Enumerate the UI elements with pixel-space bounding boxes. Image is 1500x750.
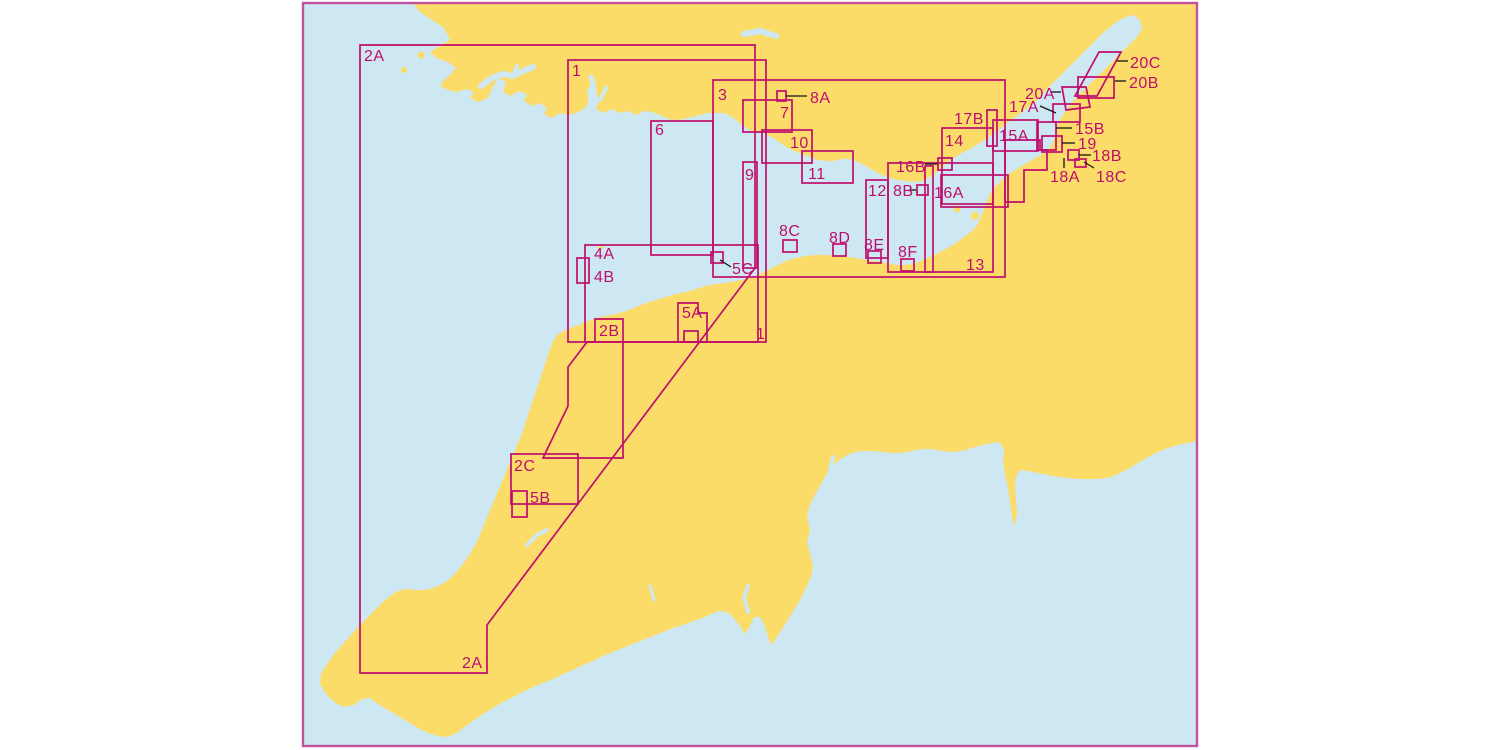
chart-label-2A-top: 2A — [364, 48, 385, 65]
chart-label-16A: 16A — [934, 185, 964, 202]
chart-label-7: 7 — [780, 105, 789, 122]
chart-label-2B: 2B — [599, 323, 620, 340]
chart-label-12: 12 — [868, 183, 887, 200]
chart-label-17B: 17B — [954, 111, 984, 128]
chart-label-20C: 20C — [1130, 55, 1161, 72]
island-grassholm — [401, 67, 407, 73]
chart-label-8D: 8D — [829, 230, 850, 247]
chart-label-8B: 8B — [893, 183, 914, 200]
island-steep-holm — [971, 212, 979, 220]
chart-label-8A: 8A — [810, 90, 831, 107]
chart-label-13: 13 — [966, 257, 985, 274]
chart-label-14: 14 — [945, 133, 964, 150]
chart-label-6: 6 — [655, 122, 664, 139]
chart-label-2A-bottom: 2A — [462, 655, 483, 672]
chart-label-11: 11 — [808, 166, 826, 183]
chart-label-20B: 20B — [1129, 75, 1159, 92]
chart-label-9: 9 — [745, 167, 754, 184]
chart-label-10: 10 — [790, 135, 809, 152]
chart-label-8F: 8F — [898, 244, 918, 261]
chart-label-5B: 5B — [530, 490, 551, 507]
chart-index-map-svg: 2A13678A10911128B16B16A141317B15A15B1918… — [0, 0, 1500, 750]
chart-index-page: 2A13678A10911128B16B16A141317B15A15B1918… — [0, 0, 1500, 750]
chart-label-4A: 4A — [594, 246, 615, 263]
chart-label-18C: 18C — [1096, 169, 1127, 186]
chart-label-15A: 15A — [999, 128, 1029, 145]
chart-label-8C: 8C — [779, 223, 800, 240]
chart-label-17A: 17A — [1009, 99, 1039, 116]
chart-label-1-top: 1 — [572, 63, 581, 80]
island-skomer — [418, 52, 425, 59]
chart-label-1-bottom: 1 — [756, 326, 765, 343]
chart-label-18B: 18B — [1092, 148, 1122, 165]
chart-label-5C: 5C — [732, 261, 753, 278]
chart-label-16B: 16B — [896, 159, 926, 176]
chart-label-3: 3 — [718, 87, 727, 104]
chart-label-8E: 8E — [864, 237, 885, 254]
chart-label-18A: 18A — [1050, 169, 1080, 186]
chart-label-4B: 4B — [594, 269, 615, 286]
chart-label-2C: 2C — [514, 458, 535, 475]
chart-label-5A: 5A — [682, 305, 703, 322]
